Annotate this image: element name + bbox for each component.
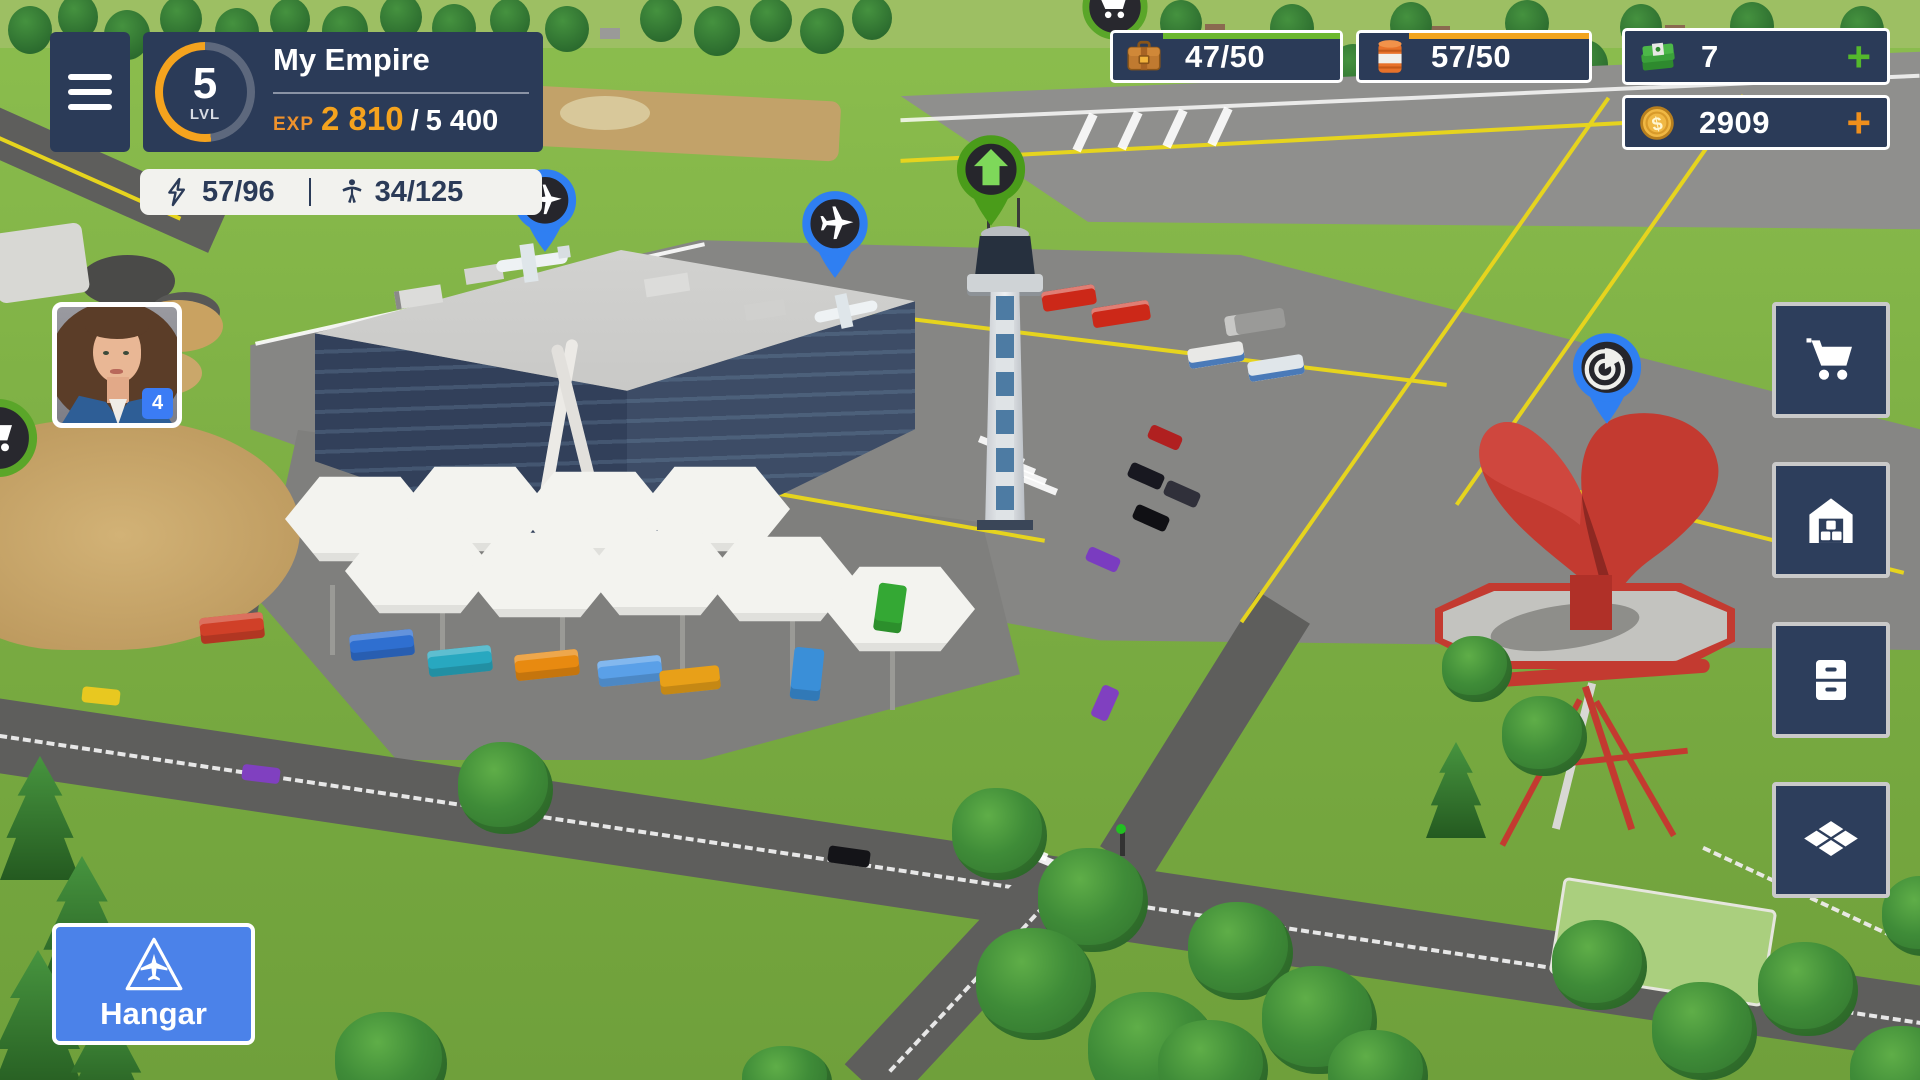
map-pin-plane[interactable] <box>798 188 872 287</box>
bus <box>789 647 824 702</box>
tree <box>952 788 1047 880</box>
distant-house <box>600 28 620 39</box>
bus <box>199 612 265 645</box>
hangar-button[interactable]: Hangar <box>52 923 255 1045</box>
map-marker-cart-left[interactable] <box>0 396 40 485</box>
warehouse-icon <box>1804 494 1858 546</box>
tree <box>1652 982 1757 1080</box>
tree <box>1502 696 1587 776</box>
tarp <box>0 222 90 304</box>
header-divider <box>273 92 529 94</box>
tree <box>1442 636 1512 702</box>
tree <box>545 6 589 52</box>
tower-gallery <box>967 274 1043 292</box>
level-panel[interactable]: 5 LVL My Empire EXP 2 810/5 400 <box>143 32 543 152</box>
tower-glass <box>996 296 1014 526</box>
canopy-pole <box>330 585 335 655</box>
avatar-lips <box>110 369 123 374</box>
cargo-counter[interactable]: 47/50 <box>1110 30 1343 83</box>
exp-row: EXP 2 810/5 400 <box>273 100 498 138</box>
population-value: 34/125 <box>375 176 464 209</box>
fuel-progress-bar <box>1409 33 1589 39</box>
warehouse-button[interactable] <box>1772 462 1890 578</box>
banknotes-icon <box>1635 35 1681 79</box>
avatar-eye <box>123 351 129 355</box>
tree <box>742 1046 832 1080</box>
avatar-hair-front <box>85 313 149 339</box>
radar-brace <box>1594 700 1677 837</box>
sand-pile <box>560 96 650 130</box>
cargo-progress-bar <box>1163 33 1340 39</box>
storage-button[interactable] <box>1772 622 1890 738</box>
cash-counter[interactable]: 7 + <box>1622 28 1890 85</box>
cart-icon <box>1803 334 1859 386</box>
traffic-light-lamp <box>1116 824 1126 834</box>
stats-divider <box>309 178 311 206</box>
level-ring-inner: 5 LVL <box>163 50 247 134</box>
avatar-badge: 4 <box>142 388 173 419</box>
radar-pedestal <box>1570 575 1612 630</box>
tree <box>458 742 553 834</box>
energy-value: 57/96 <box>202 176 275 209</box>
empire-name: My Empire <box>273 42 430 78</box>
level-value: 5 <box>193 62 217 106</box>
fuel-value: 57/50 <box>1431 39 1511 75</box>
exp-label: EXP <box>273 114 314 136</box>
game-screen: 5 LVL My Empire EXP 2 810/5 400 57/96 34… <box>0 0 1920 1080</box>
cash-value: 7 <box>1701 39 1719 75</box>
tree <box>1758 942 1858 1036</box>
coin-icon: $ <box>1635 101 1679 145</box>
tower-cab <box>975 236 1035 276</box>
barrel-icon <box>1369 36 1411 78</box>
briefcase-icon <box>1123 36 1165 78</box>
badge-count: 4 <box>152 392 163 415</box>
shop-button[interactable] <box>1772 302 1890 418</box>
fuel-counter[interactable]: 57/50 <box>1356 30 1592 83</box>
cargo-value: 47/50 <box>1185 39 1265 75</box>
tree <box>694 6 740 56</box>
car <box>1090 684 1120 722</box>
menu-button[interactable] <box>50 32 130 152</box>
cash-add-button[interactable]: + <box>1846 36 1871 78</box>
control-tower <box>955 190 1055 530</box>
level-ring: 5 LVL <box>155 42 255 142</box>
exp-max: 5 400 <box>426 105 499 138</box>
tree <box>750 0 792 42</box>
tree <box>1552 920 1647 1010</box>
car <box>81 686 120 706</box>
tree <box>800 8 844 54</box>
tiles-icon <box>1802 816 1860 864</box>
coin-value: 2909 <box>1699 105 1770 141</box>
bus-station-canopies <box>270 465 1030 745</box>
tower-base <box>977 520 1033 530</box>
person-icon <box>339 177 365 207</box>
avatar-eye <box>103 351 109 355</box>
hamburger-icon <box>68 104 112 110</box>
exp-current: 2 810 <box>321 100 404 138</box>
exp-separator: / <box>411 105 419 138</box>
tree <box>976 928 1096 1040</box>
tree <box>335 1012 447 1080</box>
coin-add-button[interactable]: + <box>1846 102 1871 144</box>
lightning-icon <box>164 176 190 208</box>
tree <box>8 6 52 54</box>
small-plane <box>808 290 888 336</box>
map-pin-radar[interactable] <box>1568 330 1646 433</box>
stats-bar: 57/96 34/125 <box>140 169 542 215</box>
level-label: LVL <box>190 106 220 123</box>
tree <box>1158 1020 1268 1080</box>
map-pin-upgrade[interactable] <box>952 132 1030 235</box>
plane-triangle-icon <box>124 936 184 992</box>
drawers-icon <box>1806 653 1856 707</box>
coin-counter[interactable]: $ 2909 + <box>1622 95 1890 150</box>
hamburger-icon <box>68 89 112 95</box>
tiles-button[interactable] <box>1772 782 1890 898</box>
hangar-label: Hangar <box>100 996 207 1032</box>
hamburger-icon <box>68 74 112 80</box>
